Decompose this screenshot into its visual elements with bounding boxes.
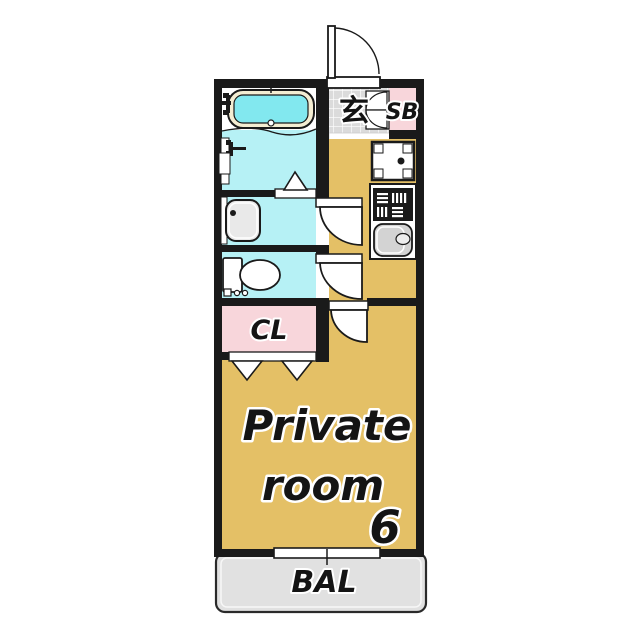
room-name-line1: Private: [243, 401, 412, 450]
wall-washroom-toilet: [222, 245, 329, 252]
balcony-label: BAL: [291, 565, 356, 600]
stove-icon: [373, 188, 413, 221]
wall-right: [416, 79, 424, 557]
floor-plan: 玄 SB CL Private room 6 BAL: [0, 0, 640, 640]
entrance-step: [329, 133, 390, 140]
entrance-door-icon: [327, 26, 380, 88]
wall-kitchen-room: [367, 298, 416, 306]
kitchen-counter: [370, 184, 416, 259]
washbasin-icon: [221, 197, 260, 244]
room-size-label: 6: [369, 501, 400, 554]
closet-label: CL: [250, 315, 287, 346]
wall-shoebox-bottom: [389, 130, 424, 139]
bathtub-icon: [228, 87, 314, 128]
washing-machine-pan-icon: [372, 142, 414, 180]
shoe-box-label: SB: [386, 100, 419, 125]
room-name-line2: room: [262, 461, 384, 510]
wall-toilet-closet: [222, 298, 329, 306]
bath-faucet-icon: [222, 93, 231, 115]
wall-top-left: [214, 79, 327, 88]
floor-plan-drawing: 玄 SB CL Private room 6 BAL: [0, 0, 640, 640]
entrance-label: 玄: [339, 94, 369, 129]
kitchen-sink-icon: [374, 224, 412, 256]
